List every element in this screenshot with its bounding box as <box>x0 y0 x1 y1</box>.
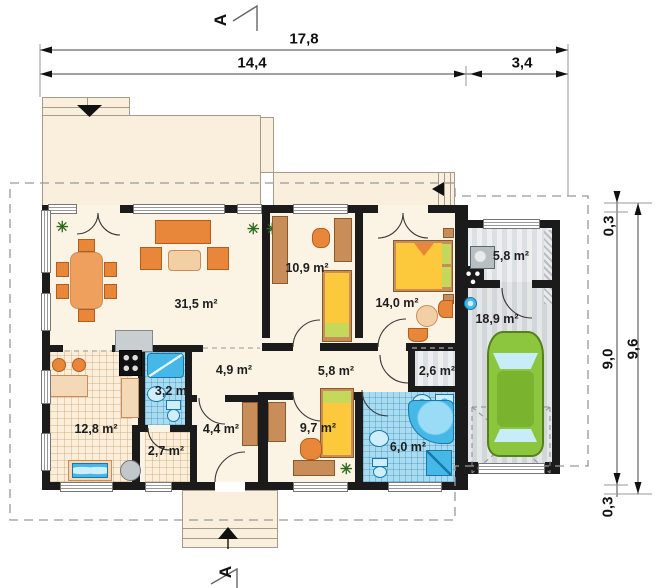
wardrobe <box>242 402 258 446</box>
room-label-living: 31,5 m² <box>174 297 217 311</box>
nightstand <box>443 228 454 238</box>
desk-chair <box>300 438 322 460</box>
window-left-2 <box>41 293 51 331</box>
room-label-bathroom-main: 6,0 m² <box>390 440 426 454</box>
window-living-3 <box>237 204 262 214</box>
dining-chair <box>78 309 95 322</box>
room-label-bedroom-double: 14,0 m² <box>375 296 418 310</box>
desk <box>293 460 335 476</box>
window-living-2 <box>133 204 225 214</box>
entrance-arrow-side <box>432 182 444 196</box>
door-arc <box>98 213 120 235</box>
pillow <box>442 267 451 287</box>
toilet-main-bowl <box>373 466 387 478</box>
kitchen-bar-counter <box>48 375 88 397</box>
stove <box>119 350 142 376</box>
pillow <box>325 323 349 337</box>
door-opening-entrance <box>215 482 245 492</box>
door-opening-living-terrace <box>77 205 120 213</box>
bar-stool <box>52 358 66 372</box>
sofa <box>155 220 211 244</box>
shower <box>426 450 452 476</box>
window-left-1 <box>41 210 51 273</box>
kitchen-counter <box>121 378 139 418</box>
dim-total-width: 17,8 <box>289 31 318 48</box>
room-label-bedroom-small: 10,9 m² <box>285 261 328 275</box>
dim-total-depth: 9,6 <box>625 339 642 360</box>
window-bathroom-main <box>388 482 442 492</box>
dining-chair <box>56 262 69 277</box>
room-label-corridor: 5,8 m² <box>318 364 354 378</box>
room-label-garage: 18,9 m² <box>475 312 518 326</box>
dim-house-width: 14,4 <box>237 55 266 72</box>
plant-icon: ✳ <box>340 462 353 477</box>
dining-chair <box>78 239 95 252</box>
window-garage <box>483 219 540 229</box>
washbasin-main <box>369 430 389 447</box>
car-roof <box>497 371 534 427</box>
window-left-4 <box>41 433 51 471</box>
plant-icon: ✳ <box>56 220 69 235</box>
armchair <box>207 247 229 270</box>
room-label-kitchen: 12,8 m² <box>74 422 117 436</box>
room-label-bathroom-small: 3,2 m² <box>155 384 191 398</box>
chair <box>408 328 428 342</box>
entrance-arrow-porch <box>218 527 238 539</box>
dim-house-depth: 9,0 <box>600 349 617 370</box>
car-windshield <box>493 353 538 369</box>
door-arc <box>215 452 245 482</box>
floor-plan: ✳ ✳ ✳ <box>0 0 660 588</box>
dim-overhang-top: 0,3 <box>601 216 618 237</box>
door-arc <box>293 392 322 421</box>
entrance-arrow-top <box>77 105 102 117</box>
pillow <box>442 244 451 264</box>
door-arc <box>380 355 408 383</box>
dining-chair <box>104 262 117 277</box>
kitchen-sink <box>72 463 108 478</box>
plant-icon: ✳ <box>247 222 260 237</box>
coffee-table <box>168 250 201 271</box>
dining-table <box>70 252 103 309</box>
window-bedroom-child <box>293 482 348 492</box>
toilet-small-bowl <box>167 409 180 422</box>
car <box>487 331 544 457</box>
car-rear-window <box>494 429 537 442</box>
room-label-hall: 4,9 m² <box>216 363 252 377</box>
door-arc <box>378 213 403 238</box>
chair <box>438 300 453 318</box>
door-arc <box>403 213 428 238</box>
section-marker-bottom: A <box>216 566 236 578</box>
door-arc <box>77 213 98 234</box>
garage-door <box>478 463 545 474</box>
bed-double <box>393 240 453 292</box>
window-kitchen <box>60 482 113 492</box>
dining-chair <box>56 284 69 299</box>
dim-overhang-bottom: 0,3 <box>600 497 617 518</box>
boiler <box>470 246 495 269</box>
wardrobe <box>268 402 286 442</box>
window-left-3 <box>41 370 51 404</box>
armchair <box>140 247 162 270</box>
room-label-entry: 2,7 m² <box>148 444 184 458</box>
mattress <box>325 273 349 323</box>
mattress <box>396 243 442 289</box>
door-opening-bedroom-terrace <box>378 205 428 213</box>
door-arc <box>199 398 225 424</box>
round-table <box>416 305 438 327</box>
room-label-boiler: 5,8 m² <box>493 249 529 263</box>
section-marker-top: A <box>211 14 231 26</box>
bathtub-small <box>147 353 184 378</box>
room-label-laundry: 2,6 m² <box>419 364 455 378</box>
section-flag-top <box>233 6 257 31</box>
dim-garage-width: 3,4 <box>512 55 533 72</box>
pillow <box>323 391 351 403</box>
bed-single <box>322 270 352 342</box>
room-label-wardrobe: 4,4 m² <box>203 422 239 436</box>
bar-stool <box>72 358 86 372</box>
window-bedroom-small <box>293 204 348 214</box>
desk-chair <box>312 228 330 248</box>
room-label-bedroom-child: 9,7 m² <box>300 421 336 435</box>
dining-chair <box>104 284 117 299</box>
door-arc <box>293 320 320 347</box>
door-arc <box>378 319 406 347</box>
window-entry <box>145 482 172 492</box>
fireplace <box>115 330 153 352</box>
door-arc <box>362 390 388 416</box>
window-living-1 <box>48 204 77 214</box>
floor-drain <box>464 297 477 310</box>
washing-machine-kitchen <box>120 460 141 481</box>
desk <box>334 218 352 262</box>
